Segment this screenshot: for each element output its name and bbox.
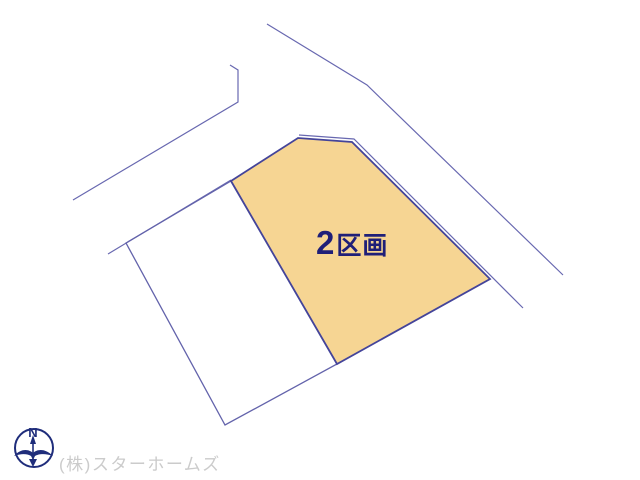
parcel-2-label-number: 2	[316, 226, 334, 259]
parcels-group	[126, 138, 490, 425]
parcel-2-label: 2 区画	[316, 226, 388, 259]
lot-plan: N 2 区画 (株)スターホームズ	[0, 0, 640, 480]
company-credit: (株)スターホームズ	[59, 450, 221, 475]
parcel-2-label-suffix: 区画	[336, 234, 388, 259]
compass-north-icon: N	[14, 425, 53, 467]
road-edge-top-left	[73, 65, 238, 200]
